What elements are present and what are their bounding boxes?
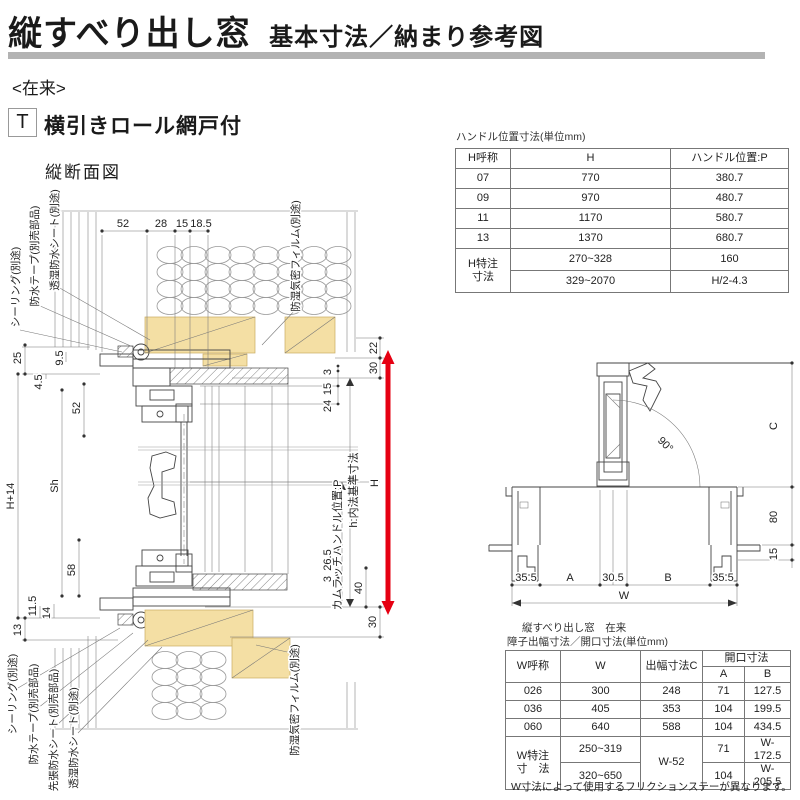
cell: 970 [511, 189, 671, 209]
table-note: W寸法によって使用するフリクションステーが異なります。 [511, 779, 792, 794]
dim-label: 24 [322, 400, 334, 412]
type-code-box: T [8, 108, 37, 137]
dim-label: 18.5 [190, 218, 211, 230]
open-sash [597, 363, 661, 486]
cell: 329~2070 [511, 271, 671, 293]
plan-dimensions-bottom: 35.5 A 30.5 B 35.5 W [510, 572, 738, 607]
cell: 270~328 [511, 249, 671, 271]
part-label: 防水テープ(別売部品) [27, 664, 40, 765]
dim-label: 28 [155, 218, 167, 230]
table-row: W特注 寸 法 250~319 W-52 71 W-172.5 [506, 737, 791, 763]
table-row: 07 770 380.7 [456, 169, 789, 189]
cell-line: H特注 [458, 258, 508, 271]
col-header: W呼称 [506, 651, 561, 683]
dim-label: 52 [71, 402, 83, 414]
dim-label: 30 [367, 616, 379, 628]
part-label: 防湿気密フィルム(別途) [289, 200, 302, 312]
h-dimension-arrow: H [369, 350, 395, 615]
cell: 353 [641, 701, 703, 719]
table-row: 13 1370 680.7 [456, 229, 789, 249]
cell: 13 [456, 229, 511, 249]
dim-label: 3 [322, 369, 334, 375]
cell: 640 [561, 719, 641, 737]
cell: 127.5 [745, 683, 791, 701]
dim-label: B [664, 572, 671, 584]
col-header: W [561, 651, 641, 683]
dim-label: C [768, 422, 780, 430]
page-subtitle: 基本寸法／納まり参考図 [269, 24, 544, 51]
dim-label: h:内法基準寸法 [346, 452, 360, 527]
cell: 036 [506, 701, 561, 719]
dim-label: 15 [176, 218, 188, 230]
insulation-symbol-bottom [152, 652, 226, 720]
cell: 300 [561, 683, 641, 701]
col-header: A [703, 667, 745, 683]
cell: 250~319 [561, 737, 641, 763]
page-header: 縦すべり出し窓 基本寸法／納まり参考図 [8, 6, 544, 55]
cell: 026 [506, 683, 561, 701]
left-jamb-profile [489, 487, 540, 581]
dim-label: 15 [768, 548, 780, 560]
dim-label: 9.5 [54, 350, 66, 365]
insulation-symbol-top [157, 247, 351, 315]
part-label: シーリング(別途) [9, 247, 22, 328]
section-title: 縦断面図 [45, 158, 121, 183]
table-row: H特注 寸法 270~328 160 [456, 249, 789, 271]
cell: 248 [641, 683, 703, 701]
cell: 060 [506, 719, 561, 737]
cell: 199.5 [745, 701, 791, 719]
cell: 104 [703, 701, 745, 719]
dim-label: 40 [353, 582, 365, 594]
cell: 434.5 [745, 719, 791, 737]
cell: 580.7 [671, 209, 789, 229]
plan-dimensions-right: C 80 15 [738, 361, 795, 568]
dim-label: 25 [12, 352, 24, 364]
dim-label: カムラッチハンドル位置:P [330, 480, 344, 611]
dim-label: 14 [41, 607, 53, 619]
table-row: 026 300 248 71 127.5 [506, 683, 791, 701]
window-head-frame [100, 344, 288, 422]
cell: 480.7 [671, 189, 789, 209]
opening-table-title-1: 縦すべり出し窓 在来 [522, 620, 626, 635]
plan-view-drawing: 90° 35.5 A 30.5 B 35.5 W [489, 361, 795, 606]
interior-casing-top [170, 368, 288, 384]
cell: 680.7 [671, 229, 789, 249]
dim-label: A [566, 572, 574, 584]
part-label: 透湿防水シート(別途) [67, 687, 80, 789]
part-label: 防湿気密フィルム(別途) [288, 644, 301, 756]
construction-type-label: <在来> [12, 74, 66, 99]
part-label: シーリング(別途) [6, 654, 19, 735]
col-header: 開口寸法 [703, 651, 791, 667]
handle-table-title: ハンドル位置寸法(単位mm) [456, 129, 586, 144]
dim-label: H+14 [5, 483, 17, 510]
col-header: H [511, 149, 671, 169]
cell: 71 [703, 683, 745, 701]
dim-label: Sh [49, 479, 61, 492]
cell: 07 [456, 169, 511, 189]
part-label: 先張防水シート(別売部品) [47, 669, 60, 792]
vertical-section-drawing: 52 28 15 18.5 シーリング(別途) 防水テープ(別売部品) 透湿防水… [5, 189, 395, 791]
dim-label: 58 [66, 564, 78, 576]
cell: H特注 寸法 [456, 249, 511, 293]
dim-label: 15 [322, 383, 334, 395]
cell: W-172.5 [745, 737, 791, 763]
col-header: H呼称 [456, 149, 511, 169]
dim-label: 11.5 [27, 596, 39, 617]
glass-and-sash [148, 384, 288, 574]
cell-line: W特注 [508, 750, 558, 763]
cell: 588 [641, 719, 703, 737]
sealant-backer-bottom [118, 614, 133, 625]
table-row: 060 640 588 104 434.5 [506, 719, 791, 737]
dim-label: 30.5 [602, 572, 623, 584]
cell: 1370 [511, 229, 671, 249]
page-title: 縦すべり出し窓 [8, 15, 251, 53]
cell: 405 [561, 701, 641, 719]
cell: 380.7 [671, 169, 789, 189]
col-header: 出幅寸法C [641, 651, 703, 683]
col-header: ハンドル位置:P [671, 149, 789, 169]
dim-label: 52 [117, 218, 129, 230]
type-label: 横引きロール網戸付 [44, 110, 242, 140]
cell: 71 [703, 737, 745, 763]
dim-label: 80 [768, 511, 780, 523]
col-header: B [745, 667, 791, 683]
dim-label: H [369, 479, 381, 487]
cell: 160 [671, 249, 789, 271]
dim-label: 22 [368, 342, 380, 354]
right-jamb-profile [709, 487, 760, 581]
cell: 09 [456, 189, 511, 209]
dimensions-left: 25 9.5 4.5 52 H+14 Sh 58 11.5 14 13 [5, 343, 118, 641]
title-divider [8, 52, 765, 59]
table-header-row: H呼称 H ハンドル位置:P [456, 149, 789, 169]
cell-line: 寸 法 [508, 763, 558, 776]
handle-position-table: H呼称 H ハンドル位置:P 07 770 380.7 09 970 480.7… [455, 148, 789, 293]
dim-label: 4.5 [33, 374, 45, 389]
dim-label: 30 [368, 362, 380, 374]
opening-dimension-table: W呼称 W 出幅寸法C 開口寸法 A B 026 300 248 71 127.… [505, 650, 791, 790]
cell: H/2-4.3 [671, 271, 789, 293]
cell: 11 [456, 209, 511, 229]
dim-label: 13 [12, 624, 24, 636]
cell: 770 [511, 169, 671, 189]
table-row: 09 970 480.7 [456, 189, 789, 209]
part-label: 防水テープ(別売部品) [28, 206, 41, 307]
table-row: 11 1170 580.7 [456, 209, 789, 229]
dim-label: 35.5 [515, 572, 536, 584]
dim-label: W [619, 590, 630, 602]
opening-table-title-2: 障子出幅寸法／開口寸法(単位mm) [507, 634, 668, 649]
table-row: 036 405 353 104 199.5 [506, 701, 791, 719]
part-label: 透湿防水シート(別途) [48, 189, 61, 291]
dim-label: 35.5 [712, 572, 733, 584]
friction-stay [629, 363, 661, 411]
table-header-row: W呼称 W 出幅寸法C 開口寸法 [506, 651, 791, 667]
cell: 1170 [511, 209, 671, 229]
angle-label: 90° [655, 435, 675, 455]
cell-line: 寸法 [458, 271, 508, 284]
cell: 104 [703, 719, 745, 737]
